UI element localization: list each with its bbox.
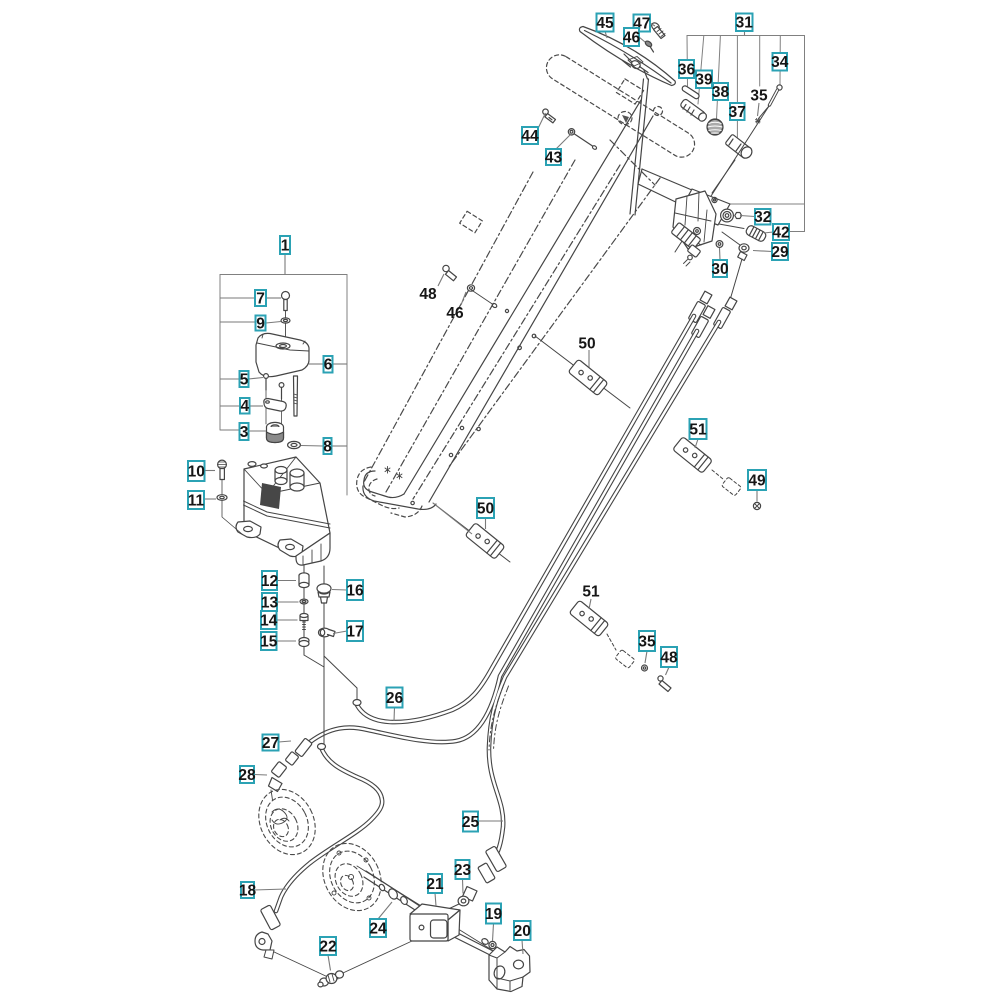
svg-text:21: 21 bbox=[426, 876, 444, 893]
svg-text:37: 37 bbox=[729, 104, 746, 121]
svg-text:46: 46 bbox=[446, 305, 464, 322]
svg-text:8: 8 bbox=[323, 438, 332, 455]
svg-text:51: 51 bbox=[689, 421, 707, 438]
svg-text:48: 48 bbox=[419, 286, 437, 303]
svg-text:11: 11 bbox=[188, 492, 205, 509]
svg-text:43: 43 bbox=[545, 149, 563, 166]
svg-text:20: 20 bbox=[514, 923, 531, 940]
svg-text:45: 45 bbox=[596, 15, 614, 32]
svg-text:31: 31 bbox=[736, 15, 754, 32]
svg-text:14: 14 bbox=[260, 612, 278, 629]
svg-text:18: 18 bbox=[239, 882, 257, 899]
svg-text:5: 5 bbox=[240, 371, 249, 388]
svg-text:7: 7 bbox=[256, 290, 265, 307]
svg-text:49: 49 bbox=[748, 472, 766, 489]
svg-text:22: 22 bbox=[319, 938, 336, 955]
svg-text:50: 50 bbox=[578, 335, 595, 352]
svg-text:48: 48 bbox=[660, 649, 678, 666]
svg-text:27: 27 bbox=[262, 735, 279, 752]
svg-text:15: 15 bbox=[260, 633, 278, 650]
svg-text:16: 16 bbox=[346, 582, 364, 599]
svg-text:23: 23 bbox=[454, 862, 472, 879]
svg-text:35: 35 bbox=[750, 87, 768, 104]
svg-text:42: 42 bbox=[772, 224, 789, 241]
svg-text:3: 3 bbox=[240, 424, 249, 441]
svg-text:46: 46 bbox=[623, 29, 641, 46]
svg-text:13: 13 bbox=[261, 594, 279, 611]
svg-text:32: 32 bbox=[754, 209, 771, 226]
svg-text:4: 4 bbox=[240, 398, 249, 415]
svg-text:26: 26 bbox=[386, 690, 404, 707]
svg-text:50: 50 bbox=[477, 500, 494, 517]
svg-text:1: 1 bbox=[281, 237, 290, 254]
svg-text:36: 36 bbox=[678, 61, 696, 78]
svg-text:34: 34 bbox=[771, 54, 789, 71]
svg-text:19: 19 bbox=[485, 906, 503, 923]
svg-text:24: 24 bbox=[369, 920, 387, 937]
svg-text:9: 9 bbox=[256, 315, 265, 332]
svg-text:6: 6 bbox=[324, 357, 333, 374]
svg-text:35: 35 bbox=[638, 633, 656, 650]
svg-text:39: 39 bbox=[695, 72, 713, 89]
svg-text:10: 10 bbox=[188, 463, 205, 480]
svg-text:38: 38 bbox=[712, 84, 730, 101]
svg-text:28: 28 bbox=[238, 767, 256, 784]
svg-text:44: 44 bbox=[521, 128, 539, 145]
svg-text:17: 17 bbox=[346, 623, 363, 640]
svg-text:12: 12 bbox=[261, 573, 278, 590]
svg-text:30: 30 bbox=[711, 261, 728, 278]
svg-text:25: 25 bbox=[462, 814, 480, 831]
svg-text:51: 51 bbox=[582, 583, 600, 600]
svg-text:29: 29 bbox=[771, 244, 789, 261]
